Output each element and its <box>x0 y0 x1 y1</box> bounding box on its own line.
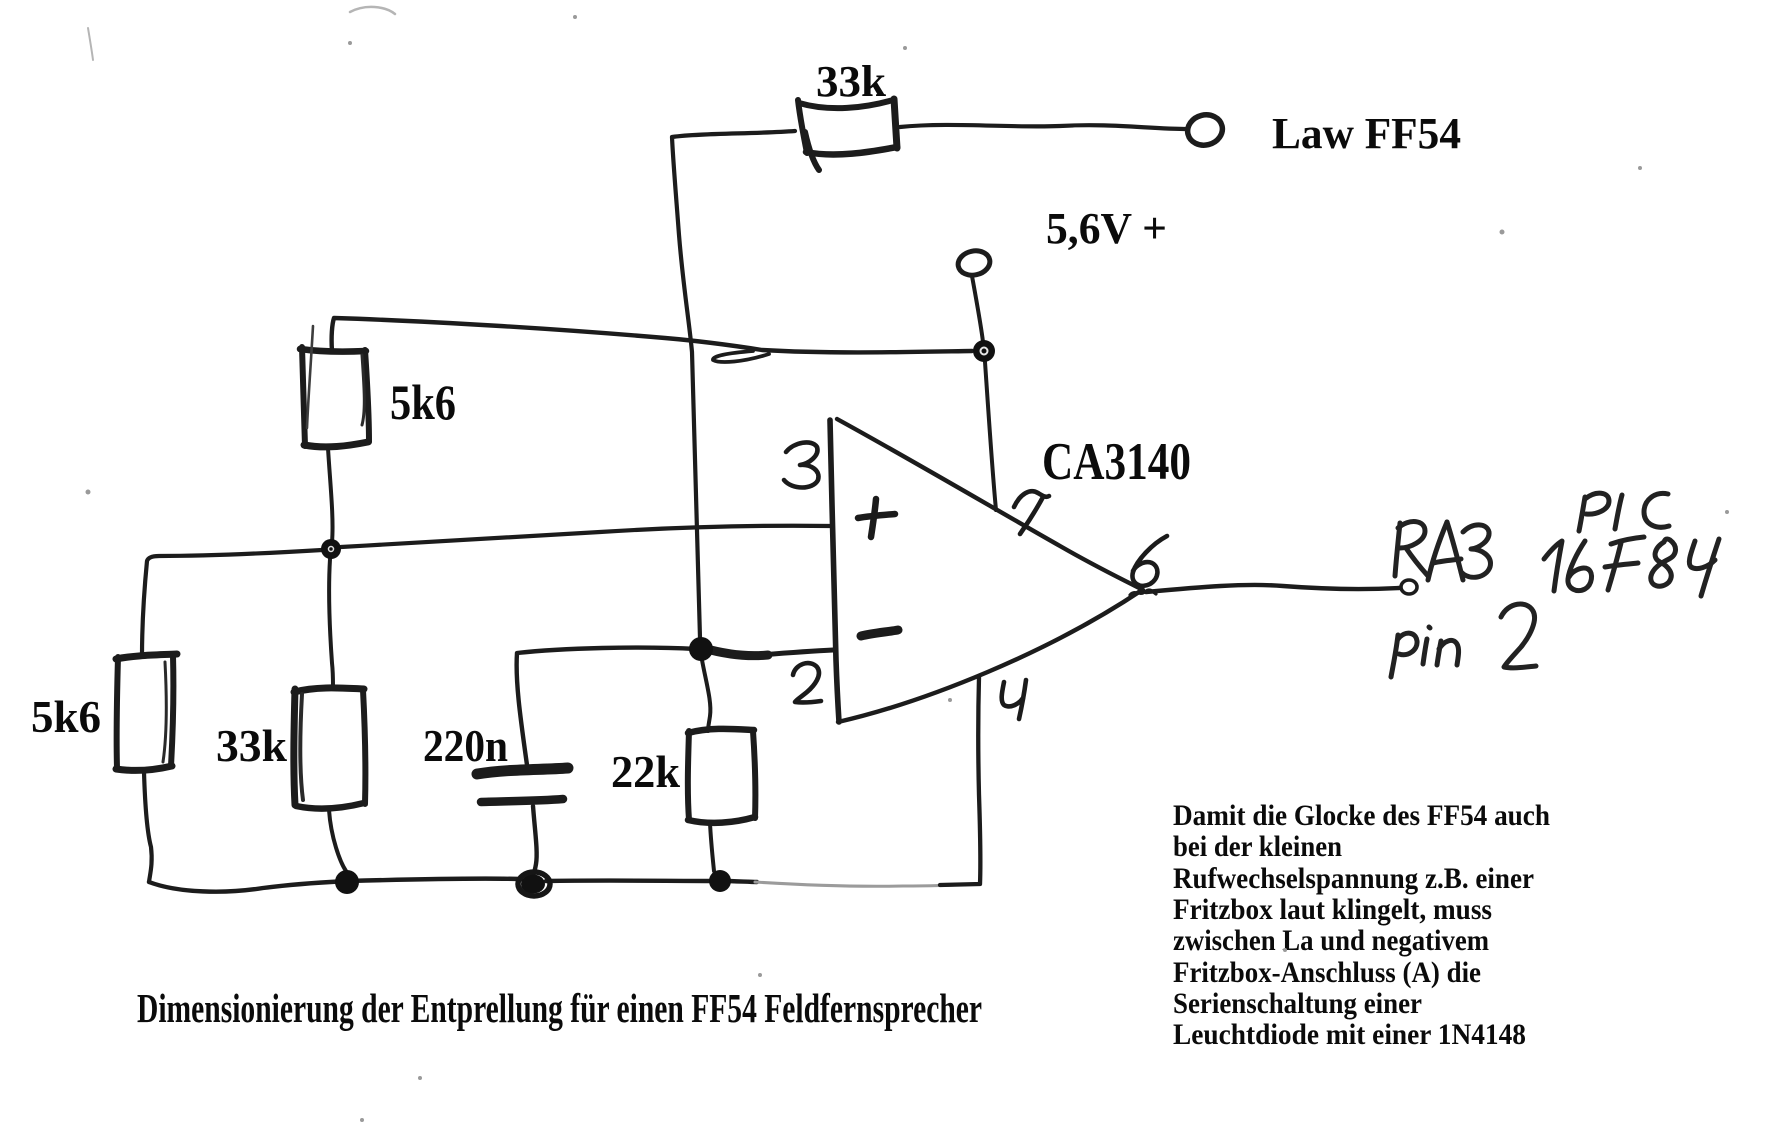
svg-text:Rufwechselspannung z.B. einer: Rufwechselspannung z.B. einer <box>1173 862 1534 895</box>
svg-text:22k: 22k <box>611 747 680 797</box>
svg-text:Dimensionierung der Entprellun: Dimensionierung der Entprellung für eine… <box>137 985 982 1031</box>
svg-text:zwischen La und negativem: zwischen La und negativem <box>1173 924 1489 957</box>
svg-text:33k: 33k <box>216 721 287 771</box>
svg-text:Leuchtdiode mit einer 1N4148: Leuchtdiode mit einer 1N4148 <box>1173 1018 1526 1051</box>
svg-text:bei der kleinen: bei der kleinen <box>1173 830 1342 863</box>
svg-text:5,6V +: 5,6V + <box>1046 204 1167 253</box>
svg-text:5k6: 5k6 <box>31 691 101 742</box>
svg-text:Fritzbox laut klingelt, muss: Fritzbox laut klingelt, muss <box>1173 893 1492 926</box>
svg-text:Damit die Glocke des FF54 auch: Damit die Glocke des FF54 auch <box>1173 799 1550 832</box>
svg-text:Serienschaltung einer: Serienschaltung einer <box>1173 987 1422 1020</box>
svg-text:33k: 33k <box>816 57 887 106</box>
svg-text:5k6: 5k6 <box>390 374 456 430</box>
svg-text:Fritzbox-Anschluss (A) die: Fritzbox-Anschluss (A) die <box>1173 956 1481 989</box>
svg-text:220n: 220n <box>423 721 508 771</box>
svg-text:CA3140: CA3140 <box>1042 433 1191 491</box>
svg-text:Law FF54: Law FF54 <box>1272 109 1461 158</box>
